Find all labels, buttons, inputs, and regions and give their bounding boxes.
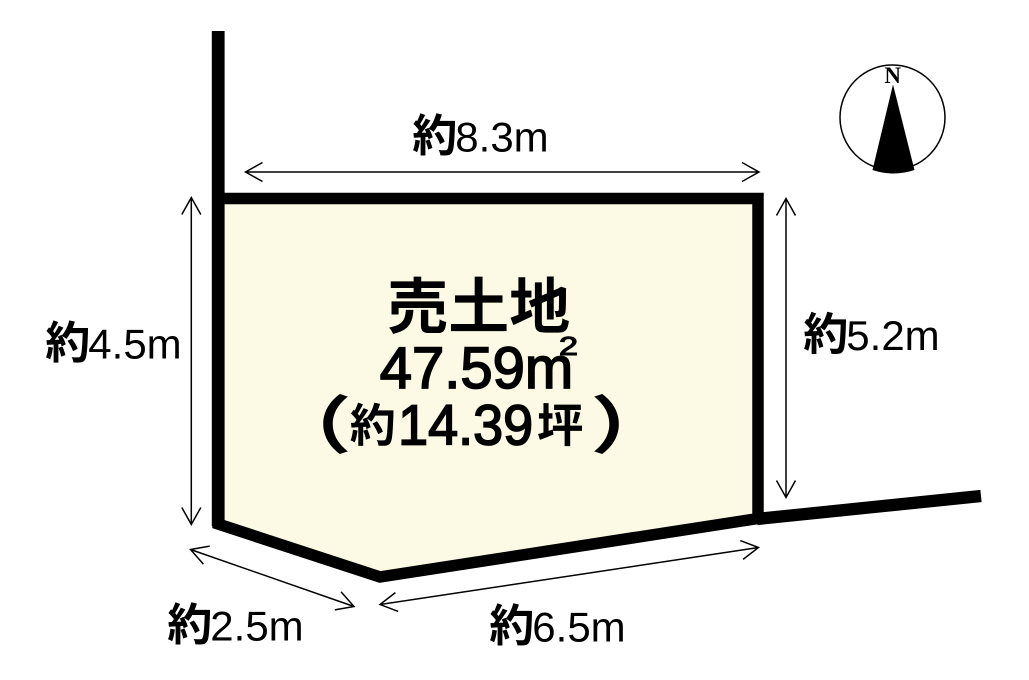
svg-text:2.5m: 2.5m [210,603,303,650]
svg-text:4.5m: 4.5m [88,321,181,368]
svg-text:8.3m: 8.3m [455,114,548,161]
svg-text:14.39: 14.39 [398,393,533,457]
svg-text:6.5m: 6.5m [532,604,625,651]
svg-text:47.59m: 47.59m [380,336,573,401]
svg-text:5.2m: 5.2m [846,312,939,359]
svg-text:2: 2 [559,331,578,361]
svg-text:N: N [884,63,901,88]
